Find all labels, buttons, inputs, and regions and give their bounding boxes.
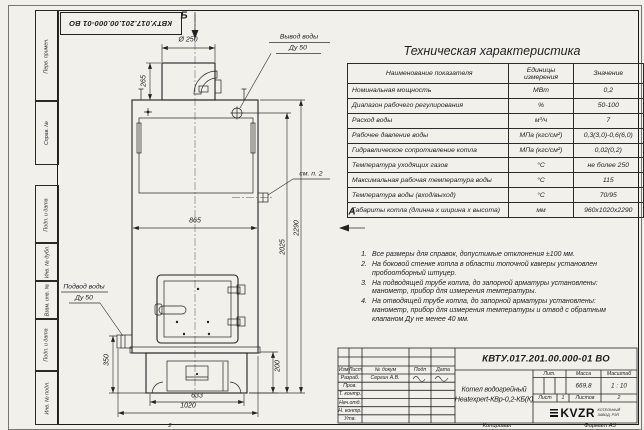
callout-see-note-2: см. п. 2 <box>299 171 322 178</box>
spec-row: Гидравлическое сопротивление котлаМПа (к… <box>348 143 644 158</box>
margin-label: Взам. инв. № <box>44 284 50 317</box>
spec-row: Диапазон рабочего регулирования%50-100 <box>348 98 644 113</box>
tb-sheet-num: 1 <box>562 395 565 401</box>
tb-row-razrab: Разраб. <box>341 375 360 381</box>
spec-row: Температура воды (вход/выход)°С70/95 <box>348 188 644 203</box>
spec-table-title: Техническая характеристика <box>352 44 632 58</box>
spec-row: Габариты котла (длинна х ширина х высота… <box>348 203 644 218</box>
doc-number-stamp-text: КВТУ.017.201.00.000-01 ВО <box>69 19 172 28</box>
margin-box-vzam-inv: Взам. инв. № <box>35 280 59 320</box>
dim-base-height: 200 <box>275 360 282 372</box>
fold-mark: 2 <box>168 423 171 429</box>
margin-box-sprav-no: Справ. № <box>35 100 59 165</box>
dim-body-width: 865 <box>189 218 201 225</box>
tb-col-podp: Подп <box>414 367 426 373</box>
tb-row-t-kontr: Т. контр. <box>339 391 361 397</box>
spec-row: Максимальная рабочая температура воды°С1… <box>348 173 644 188</box>
kvzr-logo-subtitle: КОТЕЛЬНЫЙ ЗАВОД, РЭП <box>598 408 621 416</box>
product-name-line-1: Котел водогрейный <box>462 385 527 394</box>
margin-box-inv-podl: Инв. № подл. <box>35 370 59 425</box>
tb-sheet-label: Лист <box>538 395 551 401</box>
spec-row: Температура уходящих газов°Сне более 250 <box>348 158 644 173</box>
spec-header-row: Наименование показателя Единицы измерени… <box>348 64 644 84</box>
footer-copied: Копировал <box>483 423 512 429</box>
dim-chimney-diameter: Ø 250 <box>178 37 197 44</box>
spec-row: Расход водым³/ч7 <box>348 113 644 128</box>
tb-designer-name: Сергин А.В. <box>370 375 399 381</box>
spec-col-unit: Единицы измерения <box>509 64 573 84</box>
margin-label: Подп. и дата <box>44 198 50 231</box>
margin-label: Подп. и дата <box>44 328 50 361</box>
spec-row: Рабочее давление водыМПа (кгс/см²)0,3(3,… <box>348 128 644 143</box>
tb-col-list: Лист <box>349 367 362 373</box>
callout-water-inlet-dn: Ду 50 <box>75 295 93 302</box>
view-label-b: Б <box>180 11 187 22</box>
tb-col-dokum: № докум <box>375 367 396 373</box>
note-3: 3.На подводящей трубе котла, до запорной… <box>357 280 623 297</box>
margin-label: Справ. № <box>44 120 50 144</box>
spec-row: Номинальная мощностьМВт0,2 <box>348 84 644 99</box>
dim-mid-height: 2025 <box>280 239 287 255</box>
tb-scale-value: 1 : 10 <box>611 382 627 389</box>
dim-chimney-height: 265 <box>141 75 148 87</box>
kvzr-logo: KVZR КОТЕЛЬНЫЙ ЗАВОД, РЭП <box>534 403 636 422</box>
spec-col-name: Наименование показателя <box>348 64 509 84</box>
product-name-line-2: Heatexpert-КВр-0,2-КБ(К) <box>455 395 534 404</box>
tb-col-data: Дата <box>436 367 450 373</box>
footer-format: Формат А3 <box>584 423 616 429</box>
note-4: 4.На отводящей трубе котла, до запорной … <box>357 298 623 324</box>
tb-mass-value: 669,8 <box>576 382 592 389</box>
dim-total-height: 2290 <box>294 220 301 236</box>
kvzr-logo-bars-icon <box>550 409 558 417</box>
callout-water-outlet: Вывод воды <box>280 34 318 41</box>
drawing-sheet: .o{fill:none;stroke:#222;stroke-width:1.… <box>0 0 644 430</box>
tb-row-nach-otd: Нач.отд. <box>339 400 361 406</box>
tb-sheets-num: 2 <box>618 395 621 401</box>
margin-box-perv-primen: Перв. примен. <box>35 10 59 102</box>
technical-notes: 1.Все размеры для справок, допустимые от… <box>357 251 623 324</box>
tb-col-izm: Изм <box>339 367 349 373</box>
margin-box-inv-dubl: Инв. № дубл. <box>35 242 59 282</box>
dim-overall-width: 1020 <box>180 403 196 410</box>
doc-number-stamp: КВТУ.017.201.00.000-01 ВО <box>60 12 182 35</box>
tb-scale-label: Масштаб <box>607 371 631 377</box>
spec-table: Наименование показателя Единицы измерени… <box>347 63 644 218</box>
dim-base-width: 633 <box>191 393 203 400</box>
tb-mass-label: Масса <box>576 371 591 377</box>
kvzr-logo-text: KVZR <box>560 406 595 420</box>
view-arrows <box>192 12 366 232</box>
tb-lit-label: Лит. <box>543 371 555 377</box>
tb-sheets-label: Листов <box>576 395 595 401</box>
callout-water-outlet-dn: Ду 50 <box>289 45 307 52</box>
note-1: 1.Все размеры для справок, допустимые от… <box>357 251 623 260</box>
title-block-doc-number: КВТУ.017.201.00.000-01 ВО <box>482 354 610 365</box>
margin-label: Перв. примен. <box>44 38 50 73</box>
tb-row-utv: Утв. <box>344 416 356 422</box>
tb-row-n-kontr: Н. контр. <box>338 408 361 414</box>
margin-box-podp-data-1: Подп. и дата <box>35 185 59 244</box>
tb-row-prov: Пров. <box>343 383 357 389</box>
spec-col-value: Значение <box>573 64 643 84</box>
margin-box-podp-data-2: Подп. и дата <box>35 318 59 372</box>
dim-inlet-height: 350 <box>104 354 111 366</box>
note-2: 2.На боковой стенке котла в области топо… <box>357 261 623 278</box>
callout-water-inlet: Подвод воды <box>63 284 104 291</box>
margin-label: Инв. № подл. <box>44 381 50 414</box>
margin-label: Инв. № дубл. <box>44 246 50 279</box>
